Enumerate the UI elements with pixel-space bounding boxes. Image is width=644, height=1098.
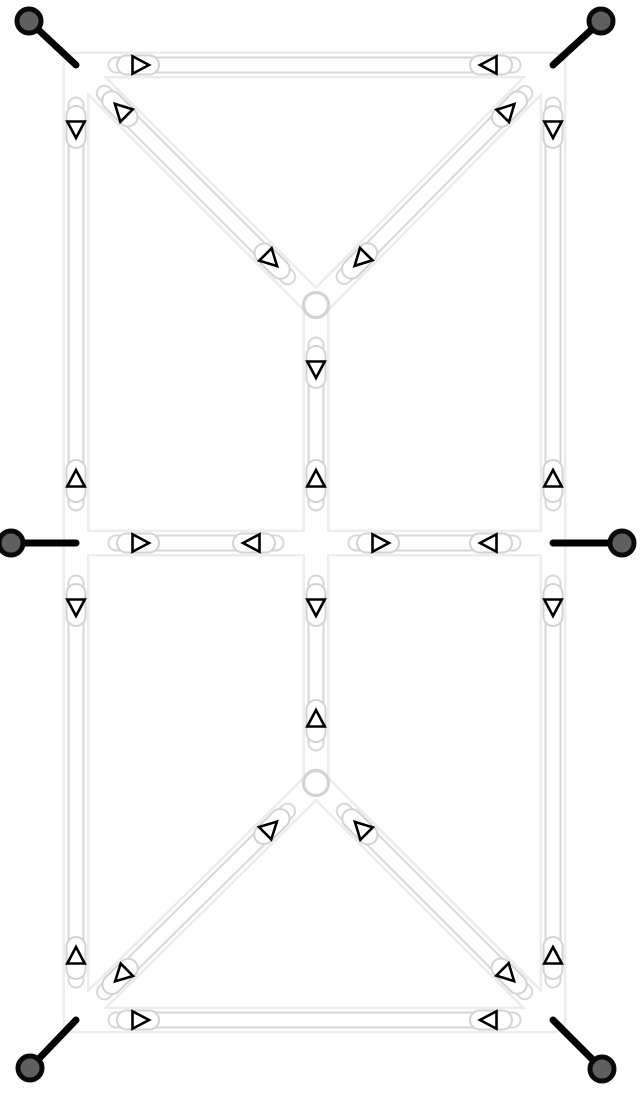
anchor-ball-MR [610, 531, 634, 555]
anchor-ball-BL [18, 1056, 42, 1080]
truss-structure-svg [0, 0, 644, 1098]
joint-circle-BC [304, 771, 329, 796]
anchor-ball-TL [17, 9, 41, 33]
truss-diagram-canvas [0, 0, 644, 1098]
anchor-ball-BR [590, 1057, 614, 1081]
joint-circle-TC [304, 293, 329, 318]
anchor-ball-TR [589, 9, 613, 33]
anchor-ball-ML [0, 531, 23, 555]
